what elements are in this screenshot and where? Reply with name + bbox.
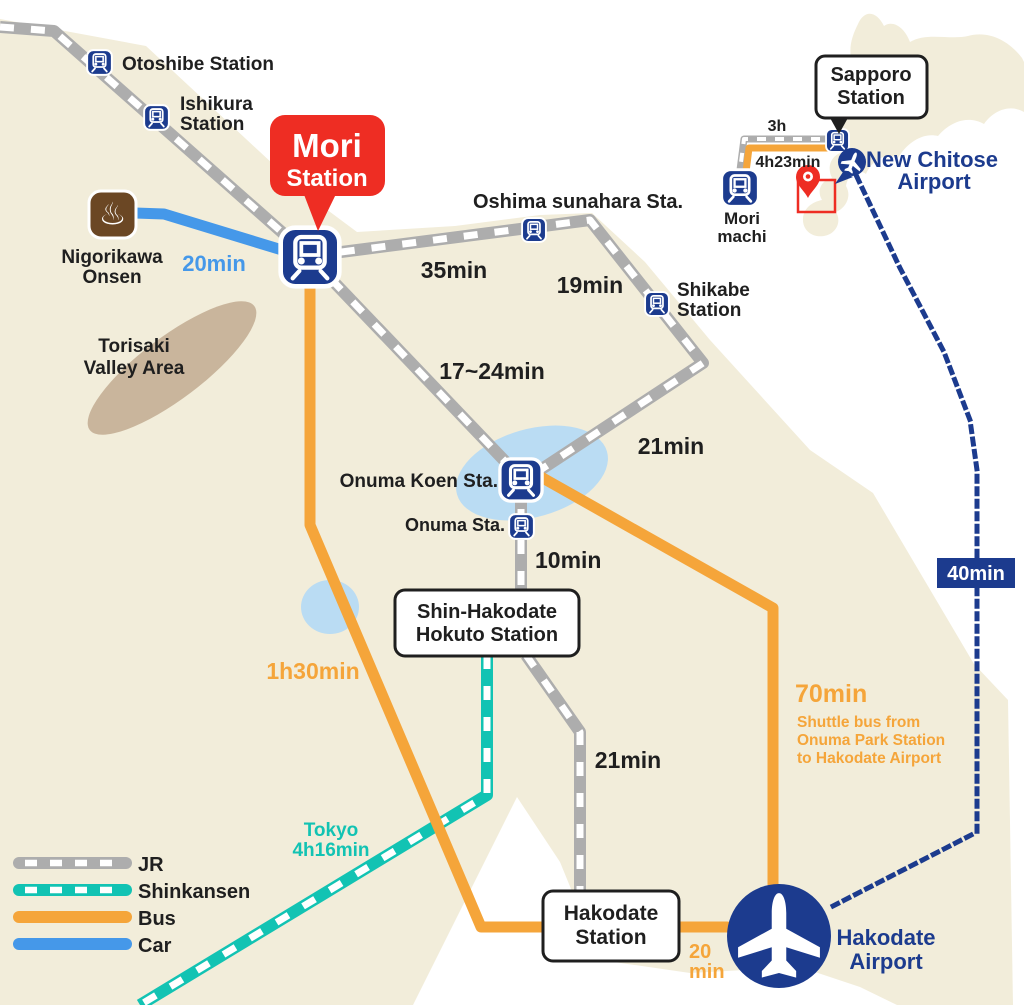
ishikura-label-2: Station <box>180 114 244 135</box>
torisaki-label-1: Torisaki <box>98 336 169 357</box>
bus-airport-time-1: 20 <box>689 941 711 963</box>
ishikura-label-1: Ishikura <box>180 94 253 115</box>
shin-hakodate-line1: Shin-Hakodate <box>417 601 557 623</box>
sapporo-callout-line1: Sapporo <box>830 64 911 86</box>
mori-callout-line2: Station <box>286 165 367 192</box>
shuttle-note-3: to Hakodate Airport <box>797 750 941 767</box>
nigorikawa-label-1: Nigorikawa <box>61 247 163 268</box>
train-icon-shikabe <box>645 292 669 316</box>
hakodate-airport-icon <box>727 884 831 988</box>
train-icon-mori <box>281 228 340 287</box>
shinkansen-time-1: Tokyo <box>304 820 359 841</box>
oshima-sunahara-label: Oshima sunahara Sta. <box>473 191 683 213</box>
car-time: 20min <box>182 251 246 276</box>
onsen-icon: ♨ <box>89 191 136 238</box>
train-icon-mori-machi <box>722 170 759 207</box>
bus-airport-time-2: min <box>689 961 725 983</box>
inset-jr-time: 3h <box>768 118 787 135</box>
torisaki-label-2: Valley Area <box>84 358 185 379</box>
sapporo-callout-line2: Station <box>837 87 905 109</box>
jr-time-mori-oshima: 35min <box>421 257 487 283</box>
mori-machi-label-1: Mori <box>724 209 760 228</box>
hakodate-airport-label-1: Hakodate <box>836 925 935 950</box>
shin-hakodate-box: Shin-Hakodate Hokuto Station <box>395 590 579 656</box>
legend-label-car: Car <box>138 935 172 957</box>
jr-time-onuma-shinhakodate: 10min <box>535 547 601 573</box>
bus-time-mori: 1h30min <box>266 658 359 684</box>
train-icon-sapporo <box>826 129 849 152</box>
train-icon-onuma <box>509 514 534 539</box>
hakodate-station-line1: Hakodate <box>564 902 659 925</box>
train-icon-onuma-koen <box>500 459 542 501</box>
flight-time-label: 40min <box>947 563 1005 585</box>
otoshibe-label: Otoshibe Station <box>122 54 274 75</box>
train-icon-ishikura <box>144 105 169 130</box>
inset-bus-time: 4h23min <box>756 154 821 171</box>
train-icon-otoshibe <box>87 50 112 75</box>
jr-time-mori-onuma: 17~24min <box>439 358 545 384</box>
transit-map: ♨ Mori Station Sapporo Station Shin-Hako… <box>0 0 1024 1005</box>
new-chitose-label-2: Airport <box>897 169 971 194</box>
hakodate-airport-label-2: Airport <box>849 949 923 974</box>
jr-time-shinhakodate-hakodate: 21min <box>595 747 661 773</box>
legend-label-bus: Bus <box>138 908 176 930</box>
mori-callout-line1: Mori <box>292 127 362 164</box>
shin-hakodate-line2: Hokuto Station <box>416 624 558 646</box>
shuttle-note-1: Shuttle bus from <box>797 714 920 731</box>
jr-time-oshima-shikabe: 19min <box>557 272 623 298</box>
onuma-label: Onuma Sta. <box>405 515 505 535</box>
hakodate-station-box: Hakodate Station <box>543 891 679 961</box>
shinkansen-time-2: 4h16min <box>292 840 369 861</box>
onsen-glyph: ♨ <box>99 197 127 232</box>
mori-machi-label-2: machi <box>717 227 766 246</box>
shuttle-note-2: Onuma Park Station <box>797 732 945 749</box>
nigorikawa-label-2: Onsen <box>82 267 141 288</box>
shikabe-label-2: Station <box>677 300 741 321</box>
flight-time-badge: 40min <box>937 558 1015 588</box>
hakodate-station-line2: Station <box>575 926 646 949</box>
onuma-koen-label: Onuma Koen Sta. <box>340 471 498 492</box>
shikabe-label-1: Shikabe <box>677 280 750 301</box>
shuttle-time: 70min <box>795 680 867 708</box>
train-icon-oshima-sunahara <box>522 218 546 242</box>
legend-label-jr: JR <box>138 854 164 876</box>
jr-time-shikabe-onuma: 21min <box>638 433 704 459</box>
legend-label-shinkansen: Shinkansen <box>138 881 250 903</box>
